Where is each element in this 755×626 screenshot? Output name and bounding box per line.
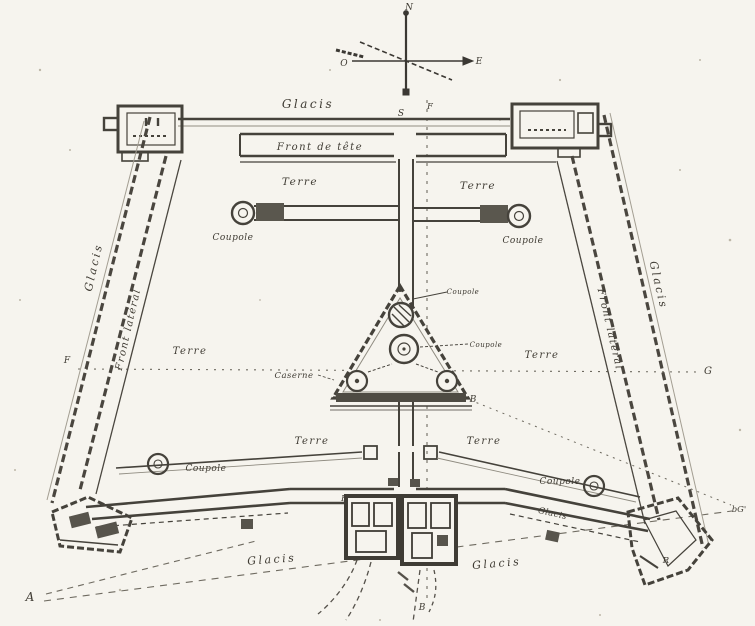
- compass-west-label: O: [340, 59, 348, 69]
- road-left2: [346, 562, 371, 620]
- label-coupole-upper-right: Coupole: [503, 236, 544, 246]
- compass-south-tip: [403, 89, 409, 95]
- entrance-right-cell3: [412, 533, 432, 558]
- label-coupole-lower-right: Coupole: [540, 477, 581, 487]
- gorge-left-inner: [92, 503, 290, 519]
- compass-tick-bar: [336, 50, 364, 57]
- entrance-right-post: [437, 535, 448, 546]
- entrance-right-cell1: [408, 503, 426, 528]
- label-terre-mid-right: Terre: [525, 350, 560, 361]
- top-rampart: [178, 119, 556, 162]
- left-rampart-inner: [96, 160, 181, 494]
- entrance-right-cell2: [431, 503, 450, 528]
- massif-cupola-mid-dot: [402, 347, 405, 350]
- central-massif: [318, 286, 472, 410]
- compass-rose: [336, 11, 473, 95]
- right-glacis-echo: [610, 113, 709, 546]
- label-coupole-upper-left: Coupole: [213, 233, 254, 243]
- gorge-right-inner: [505, 503, 648, 531]
- fort-plan-svg: N O E S F F G A bG' Glacis Front de tête: [0, 0, 755, 626]
- label-terre-lower-right: Terre: [467, 436, 502, 447]
- cupola-ul-block: [256, 203, 284, 221]
- entrance-left-cell1: [352, 503, 369, 526]
- gorge-notch-right: [424, 446, 437, 459]
- redoubt-tl-ear: [104, 118, 118, 130]
- marker-r-bastion: R: [662, 556, 670, 566]
- cupola-ll-core: [154, 460, 162, 468]
- road-right2: [429, 570, 436, 612]
- label-terre-upper-right: Terre: [460, 180, 496, 192]
- label-coupole-lower-left: Coupole: [186, 464, 227, 474]
- label-coupole-center-top: Coupole: [447, 288, 480, 296]
- top-right-redoubt: [512, 104, 611, 157]
- massif-cupola-left-dot: [355, 379, 359, 383]
- road-hatch2: [404, 584, 414, 592]
- covered-way-right: [510, 514, 640, 542]
- entrance-left-cell3: [356, 531, 386, 552]
- gorge-post-left: [241, 519, 253, 529]
- compass-east-label: E: [475, 57, 483, 67]
- top-left-redoubt: [104, 106, 182, 161]
- road-hatch1: [398, 572, 408, 580]
- gorge-notch-left: [364, 446, 377, 459]
- label-glacis-top: Glacis: [282, 97, 334, 111]
- massif-apex-post: [397, 286, 403, 292]
- leader-caserne: [318, 375, 334, 380]
- marker-b-bottom: B: [418, 603, 426, 613]
- label-glacis-bottom-left: Glacis: [247, 551, 297, 567]
- marker-b-triangle: B: [469, 395, 477, 405]
- road-right1: [413, 570, 420, 622]
- cupola-ur-block: [480, 205, 508, 223]
- bastion-bl-line: [60, 540, 118, 545]
- entrance-post-left: [388, 478, 398, 486]
- label-glacis-right: Glacis: [647, 260, 671, 311]
- cupola-ul-ring: [232, 202, 254, 224]
- label-terre-upper-left: Terre: [282, 176, 318, 188]
- redoubt-tr-inner: [520, 111, 574, 138]
- bastion-br-inner: [644, 511, 696, 566]
- label-front-de-tete: Front de tête: [276, 142, 363, 153]
- compass-east-arrow: [463, 57, 473, 65]
- bottom-right-bastion: [628, 498, 712, 585]
- massif-cupola-right-dot: [445, 379, 449, 383]
- left-rampart-outer: [80, 156, 166, 490]
- label-front-lateral-right: Front latéral: [594, 286, 624, 371]
- marker-g-right: G: [704, 366, 712, 377]
- gorge-post-right: [545, 530, 560, 542]
- bastion-br-outline: [628, 498, 712, 585]
- entrance-left-cell2: [374, 503, 392, 526]
- label-caserne: Caserne: [274, 371, 313, 381]
- bastion-br-mark: [640, 556, 658, 568]
- entrance-post-right: [410, 479, 420, 487]
- label-coupole-center-mid: Coupole: [470, 341, 503, 349]
- redoubt-tr-cell: [578, 113, 593, 133]
- label-terre-lower-left: Terre: [295, 436, 330, 447]
- label-glacis-gorge-right: Glacis: [537, 506, 568, 522]
- compass-north-label: N: [404, 3, 414, 13]
- leader-coupole-top: [413, 292, 447, 299]
- left-flank: [47, 117, 181, 503]
- massif-base-band: [336, 393, 466, 402]
- upper-left-cupola: [232, 202, 284, 224]
- bastion-bl-block2: [95, 522, 119, 539]
- label-terre-mid-left: Terre: [173, 346, 208, 357]
- cupola-ur-ring: [508, 205, 530, 227]
- entrance-blocks: [346, 496, 456, 564]
- road-left1: [318, 560, 357, 614]
- right-rampart-inner: [557, 161, 645, 524]
- upper-right-cupola: [480, 205, 530, 227]
- bastion-bl-block1: [69, 512, 91, 528]
- right-glacis-crest: [604, 115, 703, 548]
- corridor-gap-top: [394, 131, 416, 159]
- marker-a-bottom-left: A: [25, 590, 35, 604]
- marker-f-left: F: [63, 356, 71, 366]
- label-glacis-bottom-right: Glacis: [472, 555, 522, 572]
- compass-south-label: S: [398, 109, 404, 119]
- fort-plan-diagram: N O E S F F G A bG' Glacis Front de tête: [0, 0, 755, 626]
- marker-bg-right-edge: bG': [732, 505, 747, 515]
